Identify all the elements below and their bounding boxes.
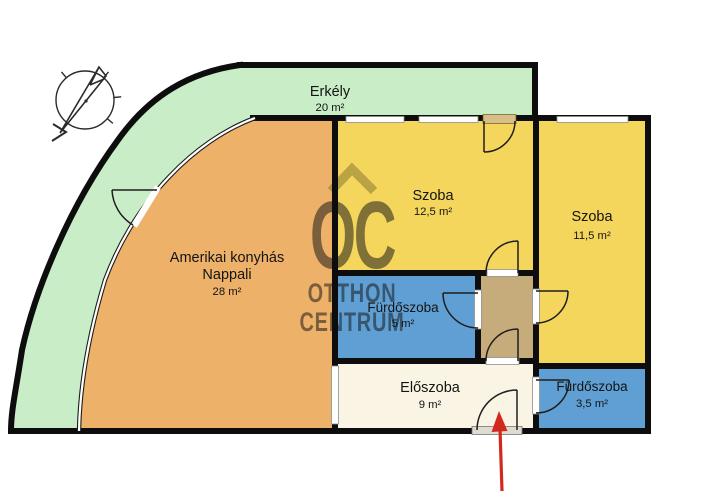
window-room2 (557, 117, 628, 123)
doorgap-corridor-hall (486, 358, 519, 365)
balcony-label: Erkély (310, 84, 351, 100)
room-furdoszoba-35 (533, 363, 651, 431)
opening-living-hall (332, 366, 339, 424)
living-label-line1: Amerikai konyhás (170, 250, 284, 266)
window-room1-a (346, 117, 404, 123)
floor-plan-svg: OC OTTHON CENTRUM (0, 0, 706, 500)
hall-label: Előszoba (400, 380, 461, 396)
room2-area: 11,5 m² (573, 230, 611, 242)
window-room1-b (419, 117, 478, 123)
living-label-line2: Nappali (202, 267, 251, 283)
room-corridor (478, 270, 538, 364)
balcony-area: 20 m² (316, 102, 345, 114)
room1-label: Szoba (412, 188, 454, 204)
doorgap-bath2 (533, 377, 540, 414)
doorgap-bath1 (475, 290, 482, 329)
bath1-label: Fürdőszoba (367, 300, 439, 315)
bath2-label: Fürdőszoba (556, 379, 628, 394)
balcony-door-panel (483, 115, 516, 124)
bath2-area: 3,5 m² (576, 398, 608, 410)
doorgap-room2 (533, 289, 540, 324)
room2-label: Szoba (571, 209, 613, 225)
room1-area: 12,5 m² (414, 206, 453, 218)
bath1-area: 5 m² (392, 318, 415, 330)
living-area: 28 m² (213, 286, 242, 298)
floorplan-canvas: OC OTTHON CENTRUM (0, 0, 706, 500)
hall-area: 9 m² (419, 399, 442, 411)
doorgap-room1-corridor (487, 270, 518, 277)
